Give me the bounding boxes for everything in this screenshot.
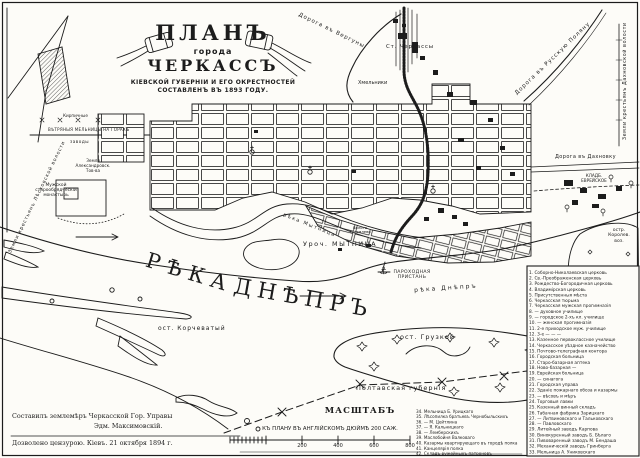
legend-list-bottom: 34. Мельница Б. Урицкаго35. Лѣсопилка бр…	[416, 409, 536, 457]
label-alexandrov-land: Земля Александровск. Тов-ва	[70, 159, 116, 173]
label-brick-works: Кирпичные	[63, 114, 88, 119]
label-road-dakhnovka: Дорога въ Дахновку	[555, 155, 616, 161]
legend-list-main: 1. Соборно-Николаевская церковь2. Св.-Пр…	[529, 270, 637, 455]
map-title: ПЛАНЪ города ЧЕРКАССЪ КІЕВСКОЙ ГУБЕРНІИ …	[118, 20, 308, 94]
scale-tick-600: 600	[364, 444, 384, 450]
title-goroda: города	[118, 47, 308, 56]
label-ost-korolev: остр. Королев. воз.	[602, 228, 636, 244]
label-windmills: ВѢТРЯНЫЯ МЕЛЬНИЦЫ НА ГОРАХЪ	[48, 128, 130, 133]
label-jewish-cemetery: КЛАДБ. ЕВРЕЙСКОЕ	[574, 174, 614, 184]
credit-censor: Дозволено цензурою. Кіевъ. 21 октября 18…	[12, 440, 173, 447]
old-town-blocks	[306, 206, 531, 263]
legend-item: 42. Складъ ружейныхъ патроновъ	[416, 451, 536, 456]
label-poltava: Полтавская губернія	[356, 385, 446, 392]
scale-title: МАСШТАБЪ	[300, 407, 420, 417]
credit-name: Эдм. Максимовскій.	[94, 423, 162, 430]
label-ost-korchevaty: ост. Корчеватый	[158, 326, 226, 333]
label-lands-dakhnovskaya: Земли крестьянъ Дахновской волости	[623, 22, 629, 140]
title-city: ЧЕРКАССЪ	[118, 56, 308, 75]
title-plan: ПЛАНЪ	[118, 20, 308, 45]
scale-bar	[230, 436, 410, 444]
legend-item: 33. Мельница А. Униковскаго	[529, 450, 637, 456]
anchor-icon: ⚓	[379, 266, 388, 278]
scale-subtitle: КЪ ПЛАНУ ВЪ АНГЛІЙСКОМЪ ДЮЙМѢ 200 САЖ.	[240, 426, 420, 432]
title-subtitle-1: КІЕВСКОЙ ГУБЕРНІИ И ЕГО ОКРЕСТНОСТЕЙ	[118, 79, 308, 86]
label-uroch-mytnitsa: Уроч. МЫТНИЦА	[303, 241, 377, 248]
map-page: ПЛАНЪ города ЧЕРКАССЪ КІЕВСКОЙ ГУБЕРНІИ …	[0, 0, 640, 458]
title-subtitle-2: СОСТАВЛЕНЪ ВЪ 1893 ГОДУ.	[118, 87, 308, 94]
credit-surveyor: Составилъ землемѣръ Черкасской Гор. Упра…	[12, 413, 172, 420]
label-pier: ПАРОХОДНАЯ ПРИСТАНЬ	[390, 270, 434, 281]
scale-tick-400: 400	[328, 444, 348, 450]
scale-tick-200: 200	[292, 444, 312, 450]
label-khmelniki: Хмельники	[358, 81, 387, 87]
label-zavody: заводы	[70, 140, 89, 145]
label-boloto: Болото Тукомлево	[344, 226, 376, 235]
label-station: Ст. Черкассы	[386, 44, 434, 50]
label-ost-gruzkoy: ост. Грузкой	[400, 334, 455, 341]
label-monastery: Мужской старообрядческій монастырь	[26, 183, 86, 198]
